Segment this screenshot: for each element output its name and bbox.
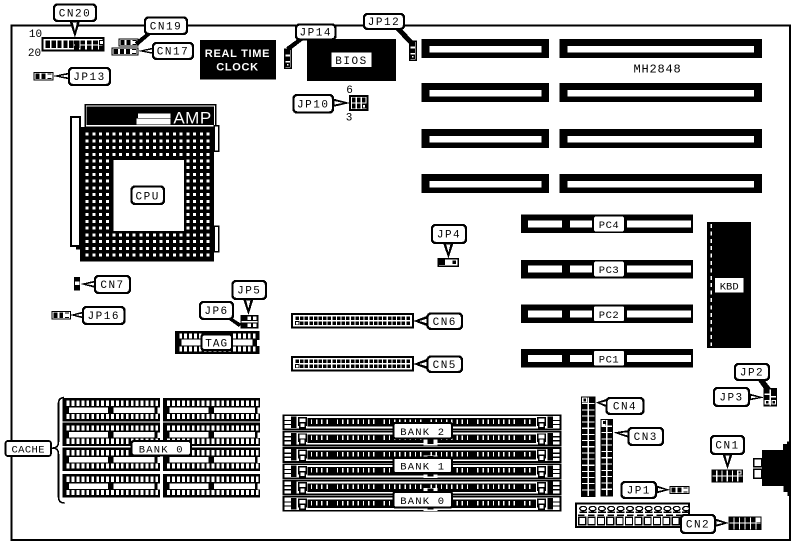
svg-text:JP13: JP13 xyxy=(73,72,105,84)
svg-text:CN6: CN6 xyxy=(433,317,457,329)
svg-text:CN20: CN20 xyxy=(59,9,91,21)
svg-text:JP16: JP16 xyxy=(88,311,120,323)
svg-text:20: 20 xyxy=(28,48,41,60)
svg-text:CN3: CN3 xyxy=(634,432,658,444)
svg-text:CN19: CN19 xyxy=(150,22,182,34)
svg-text:CN4: CN4 xyxy=(613,402,637,414)
svg-text:CLOCK: CLOCK xyxy=(216,62,259,74)
svg-text:CN5: CN5 xyxy=(433,360,457,372)
svg-text:JP10: JP10 xyxy=(297,100,329,112)
svg-text:JP6: JP6 xyxy=(204,306,228,318)
svg-text:JP4: JP4 xyxy=(437,230,461,242)
svg-text:PC4: PC4 xyxy=(599,220,619,232)
svg-text:REAL TIME: REAL TIME xyxy=(205,48,270,60)
svg-text:KBD: KBD xyxy=(720,281,739,293)
svg-text:CN17: CN17 xyxy=(157,47,189,59)
svg-text:CPU: CPU xyxy=(136,192,160,204)
svg-text:CN1: CN1 xyxy=(715,441,739,453)
svg-text:BANK 1: BANK 1 xyxy=(400,462,445,474)
svg-text:JP3: JP3 xyxy=(719,393,743,405)
svg-text:6: 6 xyxy=(346,85,353,97)
svg-text:JP12: JP12 xyxy=(368,17,400,29)
svg-text:PC3: PC3 xyxy=(599,265,619,277)
svg-text:PC1: PC1 xyxy=(599,354,619,366)
svg-text:CACHE: CACHE xyxy=(11,445,45,457)
svg-text:TAG: TAG xyxy=(205,339,228,351)
svg-text:MH2848: MH2848 xyxy=(633,62,681,76)
svg-text:BANK 0: BANK 0 xyxy=(400,496,445,508)
svg-text:JP14: JP14 xyxy=(300,28,332,40)
svg-text:JP2: JP2 xyxy=(740,368,764,380)
svg-text:3: 3 xyxy=(346,113,353,125)
svg-text:JP5: JP5 xyxy=(237,286,261,298)
svg-text:10: 10 xyxy=(29,29,42,41)
svg-text:BIOS: BIOS xyxy=(335,56,367,68)
svg-text:PC2: PC2 xyxy=(599,310,619,322)
svg-text:CN7: CN7 xyxy=(100,280,124,292)
svg-text:BANK 0: BANK 0 xyxy=(139,445,184,457)
svg-text:AMP: AMP xyxy=(173,109,211,128)
svg-text:BANK 2: BANK 2 xyxy=(400,427,445,439)
svg-text:CN2: CN2 xyxy=(686,520,710,532)
svg-text:JP1: JP1 xyxy=(627,486,651,498)
